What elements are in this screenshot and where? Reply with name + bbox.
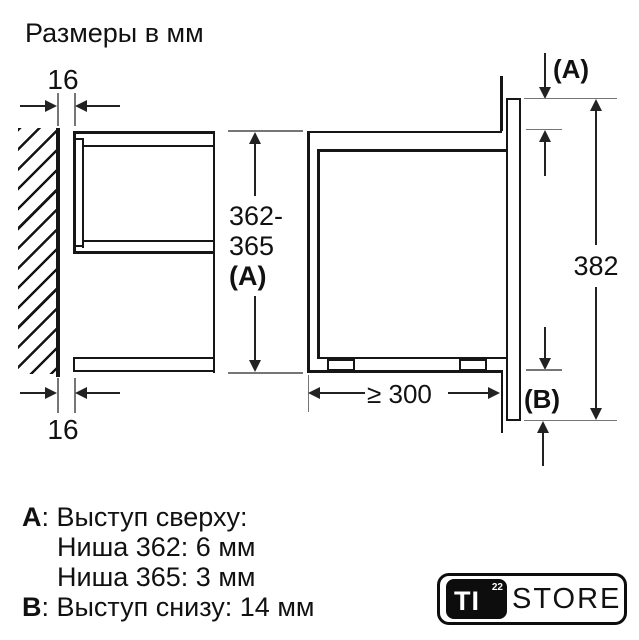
ti-store-logo: TI 22 STORE — [437, 573, 627, 625]
appliance-back-wall-line — [73, 131, 76, 253]
wall-surface-line — [56, 128, 60, 377]
dimension-shaft — [254, 144, 256, 196]
appliance-front-line — [213, 131, 216, 373]
front-height-label: 382 — [568, 251, 624, 282]
arrow-right-icon — [45, 100, 57, 112]
ti-logo-brand: TI — [454, 586, 480, 617]
dimension-shaft — [20, 392, 46, 394]
arrow-right-icon — [488, 387, 500, 399]
niche-height-value-line1: 362- — [229, 201, 283, 231]
appliance-shelf-line — [73, 251, 215, 254]
appliance-rear-line — [317, 149, 320, 359]
arrow-up-icon — [249, 132, 261, 144]
extension-line — [57, 93, 59, 126]
cabinet-front-lower-line — [501, 372, 504, 433]
legend-notes: A: Выступ сверху: Ниша 362: 6 мм Ниша 36… — [22, 502, 314, 622]
note-a-niche-362: Ниша 362: 6 мм — [22, 532, 314, 562]
extension-line — [228, 372, 303, 374]
note-b-key: B — [22, 592, 42, 622]
gap-bottom-dimension-label: 16 — [43, 414, 83, 446]
note-b-line: B: Выступ снизу: 14 мм — [22, 592, 314, 622]
note-a-text: : Выступ сверху: — [42, 502, 248, 532]
wall-hatching — [18, 128, 56, 374]
liner-back-line — [82, 138, 85, 248]
ti-logo-superscript: 22 — [492, 582, 503, 593]
note-a-line: A: Выступ сверху: — [22, 502, 314, 532]
dimension-shaft — [544, 142, 546, 176]
dimension-shaft — [544, 53, 546, 88]
arrow-left-icon — [75, 387, 87, 399]
page-title: Размеры в мм — [25, 18, 204, 49]
dimension-shaft — [87, 392, 120, 394]
extension-line — [228, 130, 303, 132]
dimension-shaft — [20, 105, 46, 107]
extension-line — [57, 378, 59, 413]
appliance-top-line — [317, 149, 507, 152]
dimension-shaft — [544, 327, 546, 358]
store-wordmark: STORE — [512, 583, 621, 616]
front-frame-panel — [506, 98, 521, 421]
dimension-shaft — [254, 296, 256, 360]
dimension-shaft — [595, 287, 597, 408]
note-a-niche-365: Ниша 365: 3 мм — [22, 562, 314, 592]
niche-top-line — [307, 131, 502, 134]
liner-top-line — [82, 145, 216, 148]
arrow-right-icon — [45, 387, 57, 399]
cabinet-front-upper-line — [500, 76, 503, 131]
dimension-shaft — [595, 111, 597, 245]
note-b-text: : Выступ снизу: 14 мм — [42, 592, 315, 622]
dimension-shaft — [448, 392, 488, 394]
installation-dimensions-diagram: Размеры в мм 16 16 — [0, 0, 639, 640]
appliance-top-line — [73, 131, 215, 134]
liner-bottom-connector-line — [73, 245, 84, 247]
arrow-down-icon — [590, 408, 602, 420]
extension-tick — [526, 369, 562, 371]
liner-bottom-line — [82, 240, 216, 243]
appliance-base-bar — [73, 357, 215, 373]
niche-height-value-line2: 365 — [229, 231, 283, 261]
arrow-down-icon — [249, 360, 261, 372]
gap-top-dimension-label: 16 — [43, 64, 83, 96]
dimension-shaft — [87, 105, 120, 107]
appliance-foot — [459, 359, 487, 371]
dimension-shaft — [542, 433, 544, 466]
overhang-top-label: (A) — [553, 54, 589, 85]
arrow-up-icon — [539, 130, 551, 142]
extension-line — [524, 98, 617, 100]
min-depth-label: ≥ 300 — [367, 379, 432, 410]
niche-height-ref-a: (A) — [229, 261, 283, 291]
ti-logo-badge: TI 22 — [446, 579, 507, 619]
arrow-up-icon — [590, 99, 602, 111]
appliance-foot — [327, 359, 355, 371]
overhang-bottom-label: (B) — [524, 384, 560, 415]
niche-height-label: 362- 365 (A) — [229, 201, 283, 291]
arrow-up-icon — [537, 421, 549, 433]
arrow-left-icon — [308, 387, 320, 399]
dimension-shaft — [320, 392, 365, 394]
note-a-key: A — [22, 502, 42, 532]
arrow-left-icon — [75, 100, 87, 112]
niche-rear-wall-line — [307, 131, 310, 373]
